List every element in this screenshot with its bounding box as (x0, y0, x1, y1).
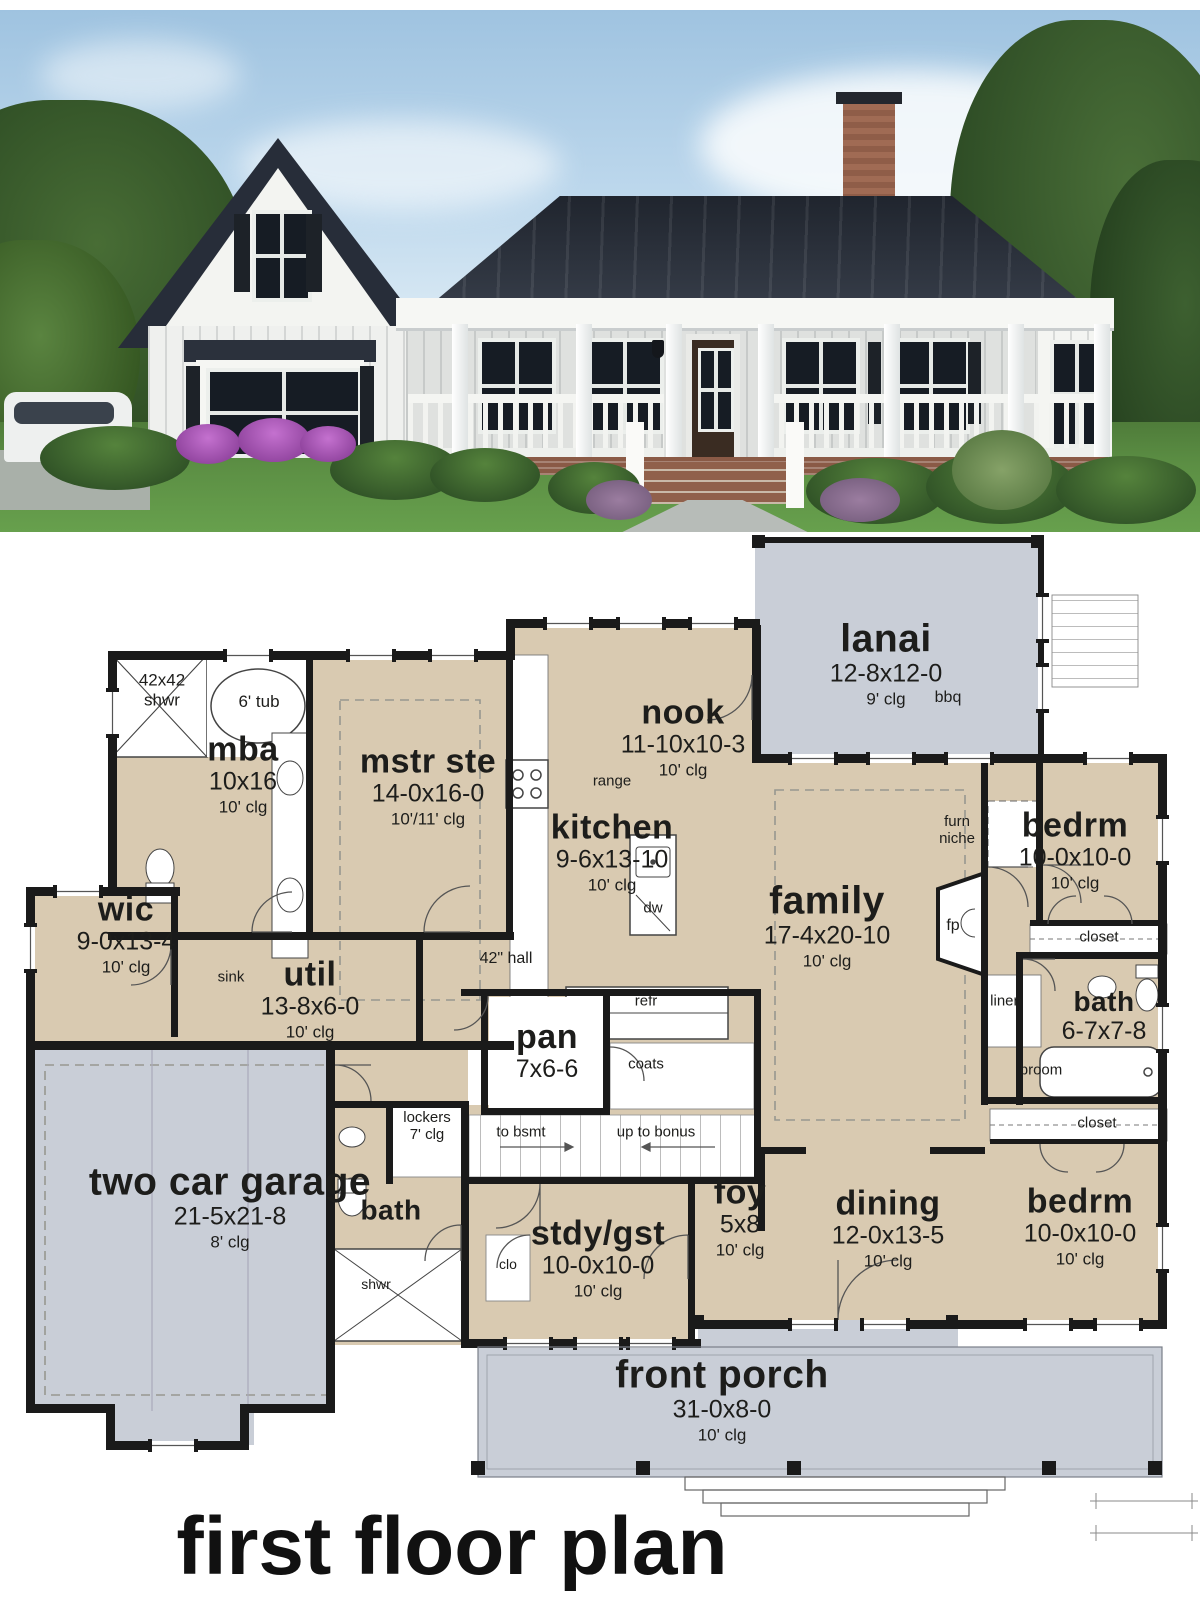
label-to-bsmt: to bsmt (496, 1123, 545, 1140)
house-photo (0, 10, 1200, 532)
room-util-clg: 10' clg (261, 1021, 360, 1042)
room-lanai-name: lanai (830, 620, 943, 660)
label-clo: clo (499, 1256, 517, 1272)
porch-fascia (396, 298, 1114, 328)
room-stdy-gst: stdy/gst 10-0x10-0 10' clg (531, 1216, 665, 1301)
porch-column (758, 324, 774, 460)
room-bath-1: bath 6-7x7-8 (1062, 988, 1147, 1046)
room-mba-dims: 10x16 (207, 767, 278, 797)
room-lanai-dims: 12-8x12-0 (830, 660, 943, 690)
room-wic-name: wic (77, 892, 176, 927)
chimney-cap (836, 92, 902, 104)
label-lockers-clg: 7' clg (403, 1126, 451, 1143)
bay-window-roof (184, 340, 376, 362)
label-furn-niche: furn niche (939, 813, 975, 848)
room-stdy-name: stdy/gst (531, 1216, 665, 1251)
room-nook: nook 11-10x10-3 10' clg (621, 695, 746, 780)
label-lockers-text: lockers (403, 1109, 451, 1126)
room-foy-dims: 5x8 (714, 1210, 767, 1240)
bush (430, 448, 540, 502)
room-wic-dims: 9-0x13-4 (77, 927, 176, 957)
room-wic-clg: 10' clg (77, 956, 176, 977)
porch-rail-bottom (764, 448, 1108, 457)
room-bath1-name: bath (1062, 988, 1147, 1017)
room-bedrm2-clg: 10' clg (1024, 1248, 1137, 1269)
room-util-name: util (261, 957, 360, 992)
bush (1056, 456, 1196, 524)
label-sink: sink (218, 968, 245, 985)
room-mstr-ste: mstr ste 14-0x16-0 10'/11' clg (360, 744, 496, 829)
room-kitchen-clg: 10' clg (551, 874, 674, 895)
bay-shutter-right (360, 366, 374, 450)
porch-lantern-left (652, 340, 664, 358)
gable-shutter-right (306, 214, 322, 292)
room-family: family 17-4x20-10 10' clg (764, 882, 890, 973)
room-nook-clg: 10' clg (621, 759, 746, 780)
label-shwr-size: 42x42 (139, 670, 185, 690)
room-bedrm-2: bedrm 10-0x10-0 10' clg (1024, 1184, 1137, 1269)
porch-balusters (764, 403, 1108, 451)
room-mstr-clg: 10'/11' clg (360, 808, 496, 829)
car-windows (14, 402, 114, 424)
porch-column (576, 324, 592, 460)
tall-grass (952, 430, 1052, 510)
floor-plan: mba 10x16 10' clg mstr ste 14-0x16-0 10'… (0, 535, 1200, 1603)
flower-bush (176, 424, 240, 464)
gable-window (252, 210, 312, 302)
label-closet-2: closet (1077, 1114, 1116, 1131)
room-mba-name: mba (207, 732, 278, 767)
room-family-dims: 17-4x20-10 (764, 922, 890, 952)
porch-column (666, 324, 682, 460)
room-foy: foy 5x8 10' clg (714, 1175, 767, 1260)
flower-bush (238, 418, 310, 462)
label-lockers: lockers 7' clg (403, 1109, 451, 1144)
label-fp: fp (946, 917, 959, 935)
page: mba 10x16 10' clg mstr ste 14-0x16-0 10'… (0, 0, 1200, 1603)
label-tub: 6' tub (238, 692, 279, 712)
plan-title: first floor plan (176, 1500, 727, 1594)
room-bath-2: bath (360, 1197, 421, 1226)
label-42in-hall: 42" hall (480, 950, 533, 968)
room-kitchen: kitchen 9-6x13-10 10' clg (551, 810, 674, 895)
room-pan-dims: 7x6-6 (516, 1055, 579, 1085)
room-pan-name: pan (516, 1020, 579, 1055)
room-porch-name: front porch (615, 1356, 828, 1396)
flower-bush (300, 426, 356, 462)
label-up-to-bonus: up to bonus (617, 1123, 695, 1140)
room-dining-clg: 10' clg (832, 1250, 945, 1271)
room-lanai-clg: 9' clg (830, 689, 943, 710)
room-nook-name: nook (621, 695, 746, 730)
label-furn: furn (939, 813, 975, 830)
gable-shutter-left (234, 214, 250, 292)
label-closet-1: closet (1079, 928, 1118, 945)
room-nook-dims: 11-10x10-3 (621, 730, 746, 760)
porch-column (884, 324, 900, 460)
label-range: range (593, 772, 631, 789)
brick-steps (640, 462, 790, 504)
label-coats: coats (628, 1055, 664, 1072)
chimney (843, 102, 895, 212)
label-refr: refr (635, 992, 658, 1009)
room-mstr-name: mstr ste (360, 744, 496, 779)
room-mstr-dims: 14-0x16-0 (360, 779, 496, 809)
room-bath1-dims: 6-7x7-8 (1062, 1017, 1147, 1047)
room-mba: mba 10x16 10' clg (207, 732, 278, 817)
room-front-porch: front porch 31-0x8-0 10' clg (615, 1356, 828, 1447)
room-util-dims: 13-8x6-0 (261, 992, 360, 1022)
label-dw: dw (643, 899, 662, 916)
room-mba-clg: 10' clg (207, 796, 278, 817)
label-linen: linen (990, 992, 1022, 1009)
room-garage: two car garage 21-5x21-8 8' clg (89, 1163, 371, 1254)
bush (40, 426, 190, 490)
room-util: util 13-8x6-0 10' clg (261, 957, 360, 1042)
label-shwr: shwr (139, 690, 185, 710)
room-pan: pan 7x6-6 (516, 1020, 579, 1084)
room-garage-dims: 21-5x21-8 (89, 1203, 371, 1233)
room-bedrm1-dims: 10-0x10-0 (1019, 843, 1132, 873)
room-family-name: family (764, 882, 890, 922)
ornamental-grass (820, 478, 900, 522)
room-kitchen-dims: 9-6x13-10 (551, 845, 674, 875)
room-porch-clg: 10' clg (615, 1425, 828, 1446)
room-family-clg: 10' clg (764, 951, 890, 972)
room-kitchen-name: kitchen (551, 810, 674, 845)
room-dining-name: dining (832, 1186, 945, 1221)
room-bedrm2-dims: 10-0x10-0 (1024, 1219, 1137, 1249)
room-garage-name: two car garage (89, 1163, 371, 1203)
room-porch-dims: 31-0x8-0 (615, 1396, 828, 1426)
newel-post-right (786, 422, 804, 508)
room-stdy-dims: 10-0x10-0 (531, 1251, 665, 1281)
room-garage-clg: 8' clg (89, 1232, 371, 1253)
porch-corner-column (1094, 324, 1110, 464)
room-bedrm2-name: bedrm (1024, 1184, 1137, 1219)
room-foy-name: foy (714, 1175, 767, 1210)
label-broom: broom (1020, 1061, 1063, 1078)
room-bedrm1-name: bedrm (1019, 808, 1132, 843)
front-door-glass (698, 348, 734, 432)
label-niche: niche (939, 830, 975, 847)
porch-rail-top (764, 394, 1108, 403)
room-lanai: lanai 12-8x12-0 9' clg (830, 620, 943, 711)
porch-rail-top (408, 394, 664, 403)
room-dining-dims: 12-0x13-5 (832, 1221, 945, 1251)
porch-column (452, 324, 468, 460)
label-master-shower: 42x42 shwr (139, 670, 185, 709)
room-stdy-clg: 10' clg (531, 1280, 665, 1301)
room-dining: dining 12-0x13-5 10' clg (832, 1186, 945, 1271)
ornamental-grass (586, 480, 652, 520)
room-bedrm1-clg: 10' clg (1019, 872, 1132, 893)
room-bedrm-1: bedrm 10-0x10-0 10' clg (1019, 808, 1132, 893)
room-foy-clg: 10' clg (714, 1239, 767, 1260)
label-shwr-2: shwr (361, 1276, 391, 1292)
room-wic: wic 9-0x13-4 10' clg (77, 892, 176, 977)
room-bath2-name: bath (360, 1197, 421, 1226)
label-bbq: bbq (935, 689, 962, 707)
